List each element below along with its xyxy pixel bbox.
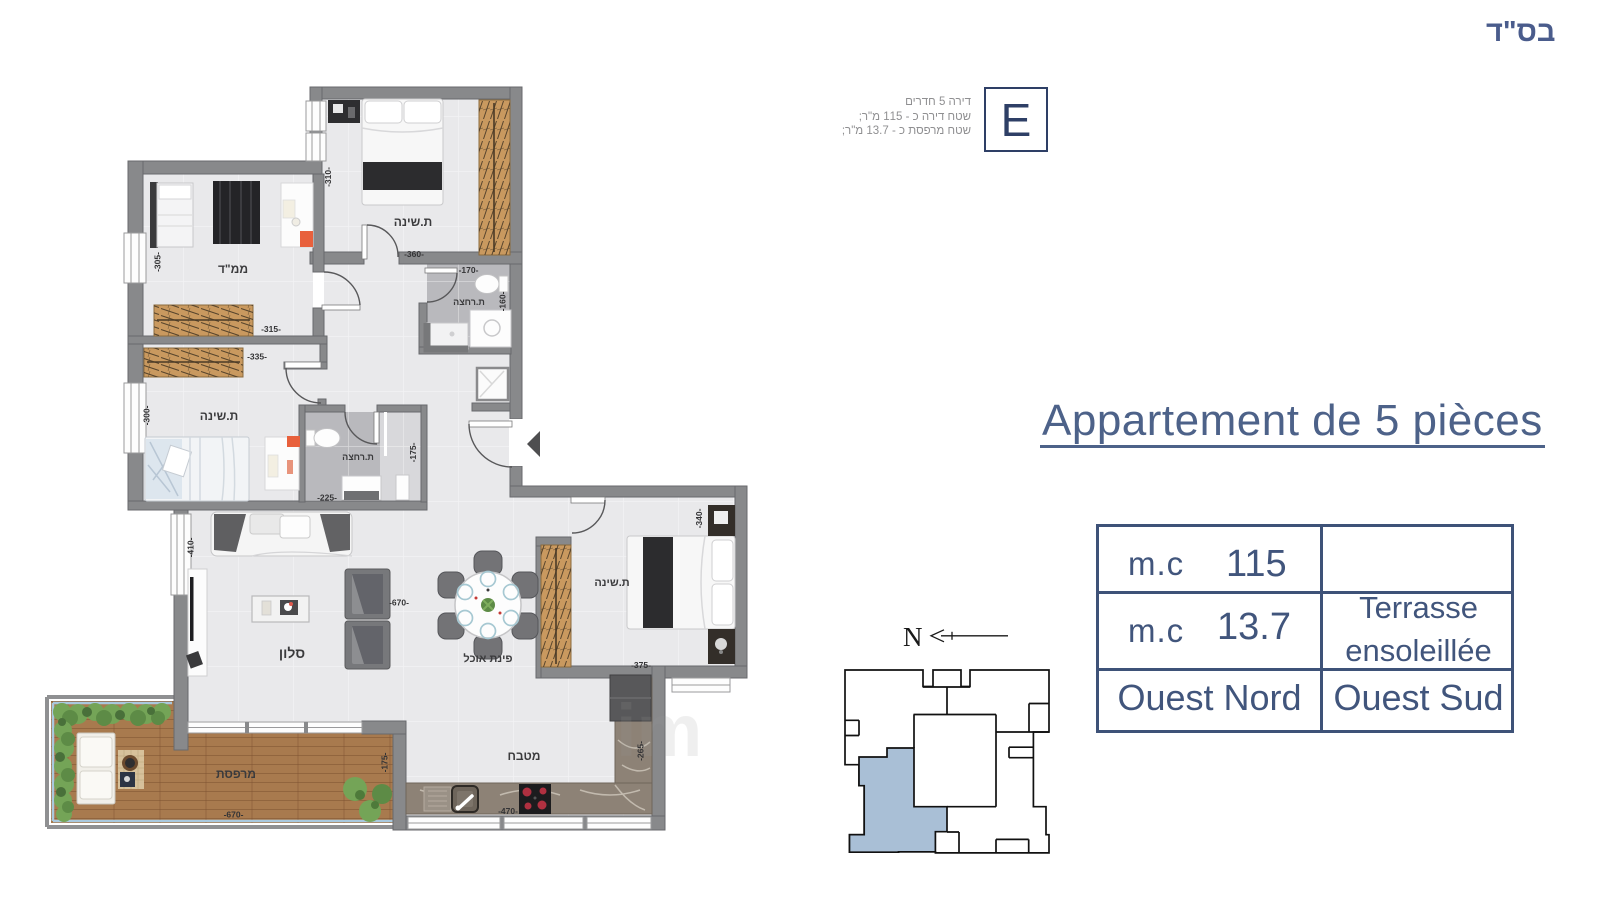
- svg-text:מטבח: מטבח: [507, 749, 540, 763]
- svg-text:-305-: -305-: [153, 252, 163, 272]
- svg-text:ת.רחצה: ת.רחצה: [342, 452, 374, 462]
- svg-text:-340-: -340-: [694, 508, 704, 528]
- svg-text:ממ"ד: ממ"ד: [218, 262, 248, 276]
- svg-text:ת.רחצה: ת.רחצה: [453, 297, 485, 307]
- svg-text:מרפסת: מרפסת: [216, 767, 256, 781]
- svg-text:סלון: סלון: [279, 645, 305, 661]
- svg-text:ת.שינה: ת.שינה: [394, 215, 433, 229]
- svg-text:-160-: -160-: [498, 291, 508, 311]
- svg-text:-315-: -315-: [261, 324, 281, 334]
- svg-text:-300-: -300-: [142, 405, 152, 425]
- svg-text:-670-: -670-: [389, 598, 409, 608]
- svg-text:-360-: -360-: [404, 249, 424, 259]
- svg-text:-310-: -310-: [323, 167, 333, 187]
- svg-text:-470-: -470-: [498, 806, 518, 816]
- svg-text:-670-: -670-: [224, 810, 244, 820]
- svg-text:-170-: -170-: [459, 265, 479, 275]
- svg-text:N: N: [903, 622, 923, 652]
- svg-text:-375-: -375-: [631, 660, 651, 670]
- svg-text:ת.שינה: ת.שינה: [200, 409, 239, 423]
- svg-text:-175-: -175-: [380, 752, 390, 772]
- svg-text:-265-: -265-: [636, 741, 646, 761]
- svg-text:ת.שינה: ת.שינה: [594, 577, 629, 589]
- svg-text:im: im: [616, 689, 702, 772]
- svg-text:פינת אוכל: פינת אוכל: [463, 652, 512, 665]
- svg-text:-410-: -410-: [186, 537, 196, 557]
- svg-text:-225-: -225-: [317, 493, 337, 503]
- svg-text:-335-: -335-: [247, 352, 267, 362]
- svg-text:-175-: -175-: [408, 442, 418, 462]
